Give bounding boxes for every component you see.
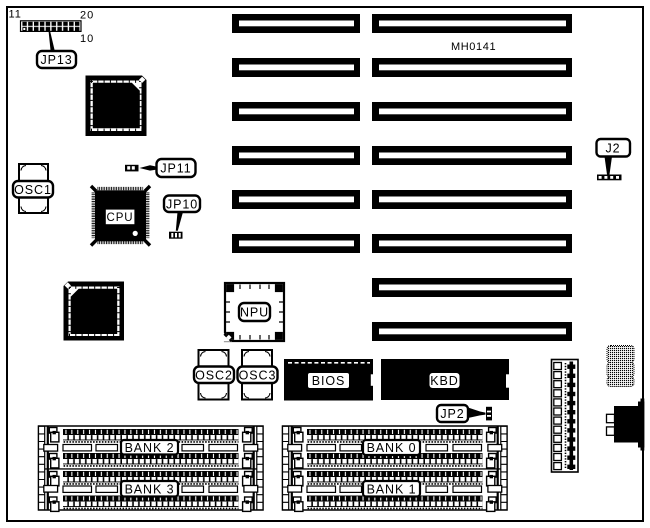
svg-text:11: 11 (9, 9, 22, 21)
svg-text:JP11: JP11 (160, 162, 191, 176)
svg-text:20: 20 (80, 10, 94, 22)
svg-text:BIOS: BIOS (312, 374, 345, 388)
svg-text:BANK 3: BANK 3 (125, 482, 175, 496)
svg-text:KBD: KBD (430, 374, 458, 388)
svg-text:CPU: CPU (107, 212, 134, 224)
svg-text:J2: J2 (605, 141, 620, 155)
svg-text:10: 10 (80, 33, 94, 45)
svg-text:BANK 2: BANK 2 (125, 441, 175, 455)
svg-text:JP2: JP2 (440, 407, 464, 421)
svg-text:OSC1: OSC1 (14, 183, 52, 197)
svg-text:OSC2: OSC2 (195, 368, 233, 382)
svg-text:BANK 0: BANK 0 (367, 441, 417, 455)
svg-text:BANK 1: BANK 1 (367, 482, 417, 496)
svg-text:OSC3: OSC3 (239, 368, 277, 382)
svg-text:MH0141: MH0141 (451, 41, 496, 53)
svg-text:JP10: JP10 (166, 197, 198, 211)
svg-text:JP13: JP13 (40, 53, 72, 67)
svg-text:NPU: NPU (240, 306, 269, 320)
